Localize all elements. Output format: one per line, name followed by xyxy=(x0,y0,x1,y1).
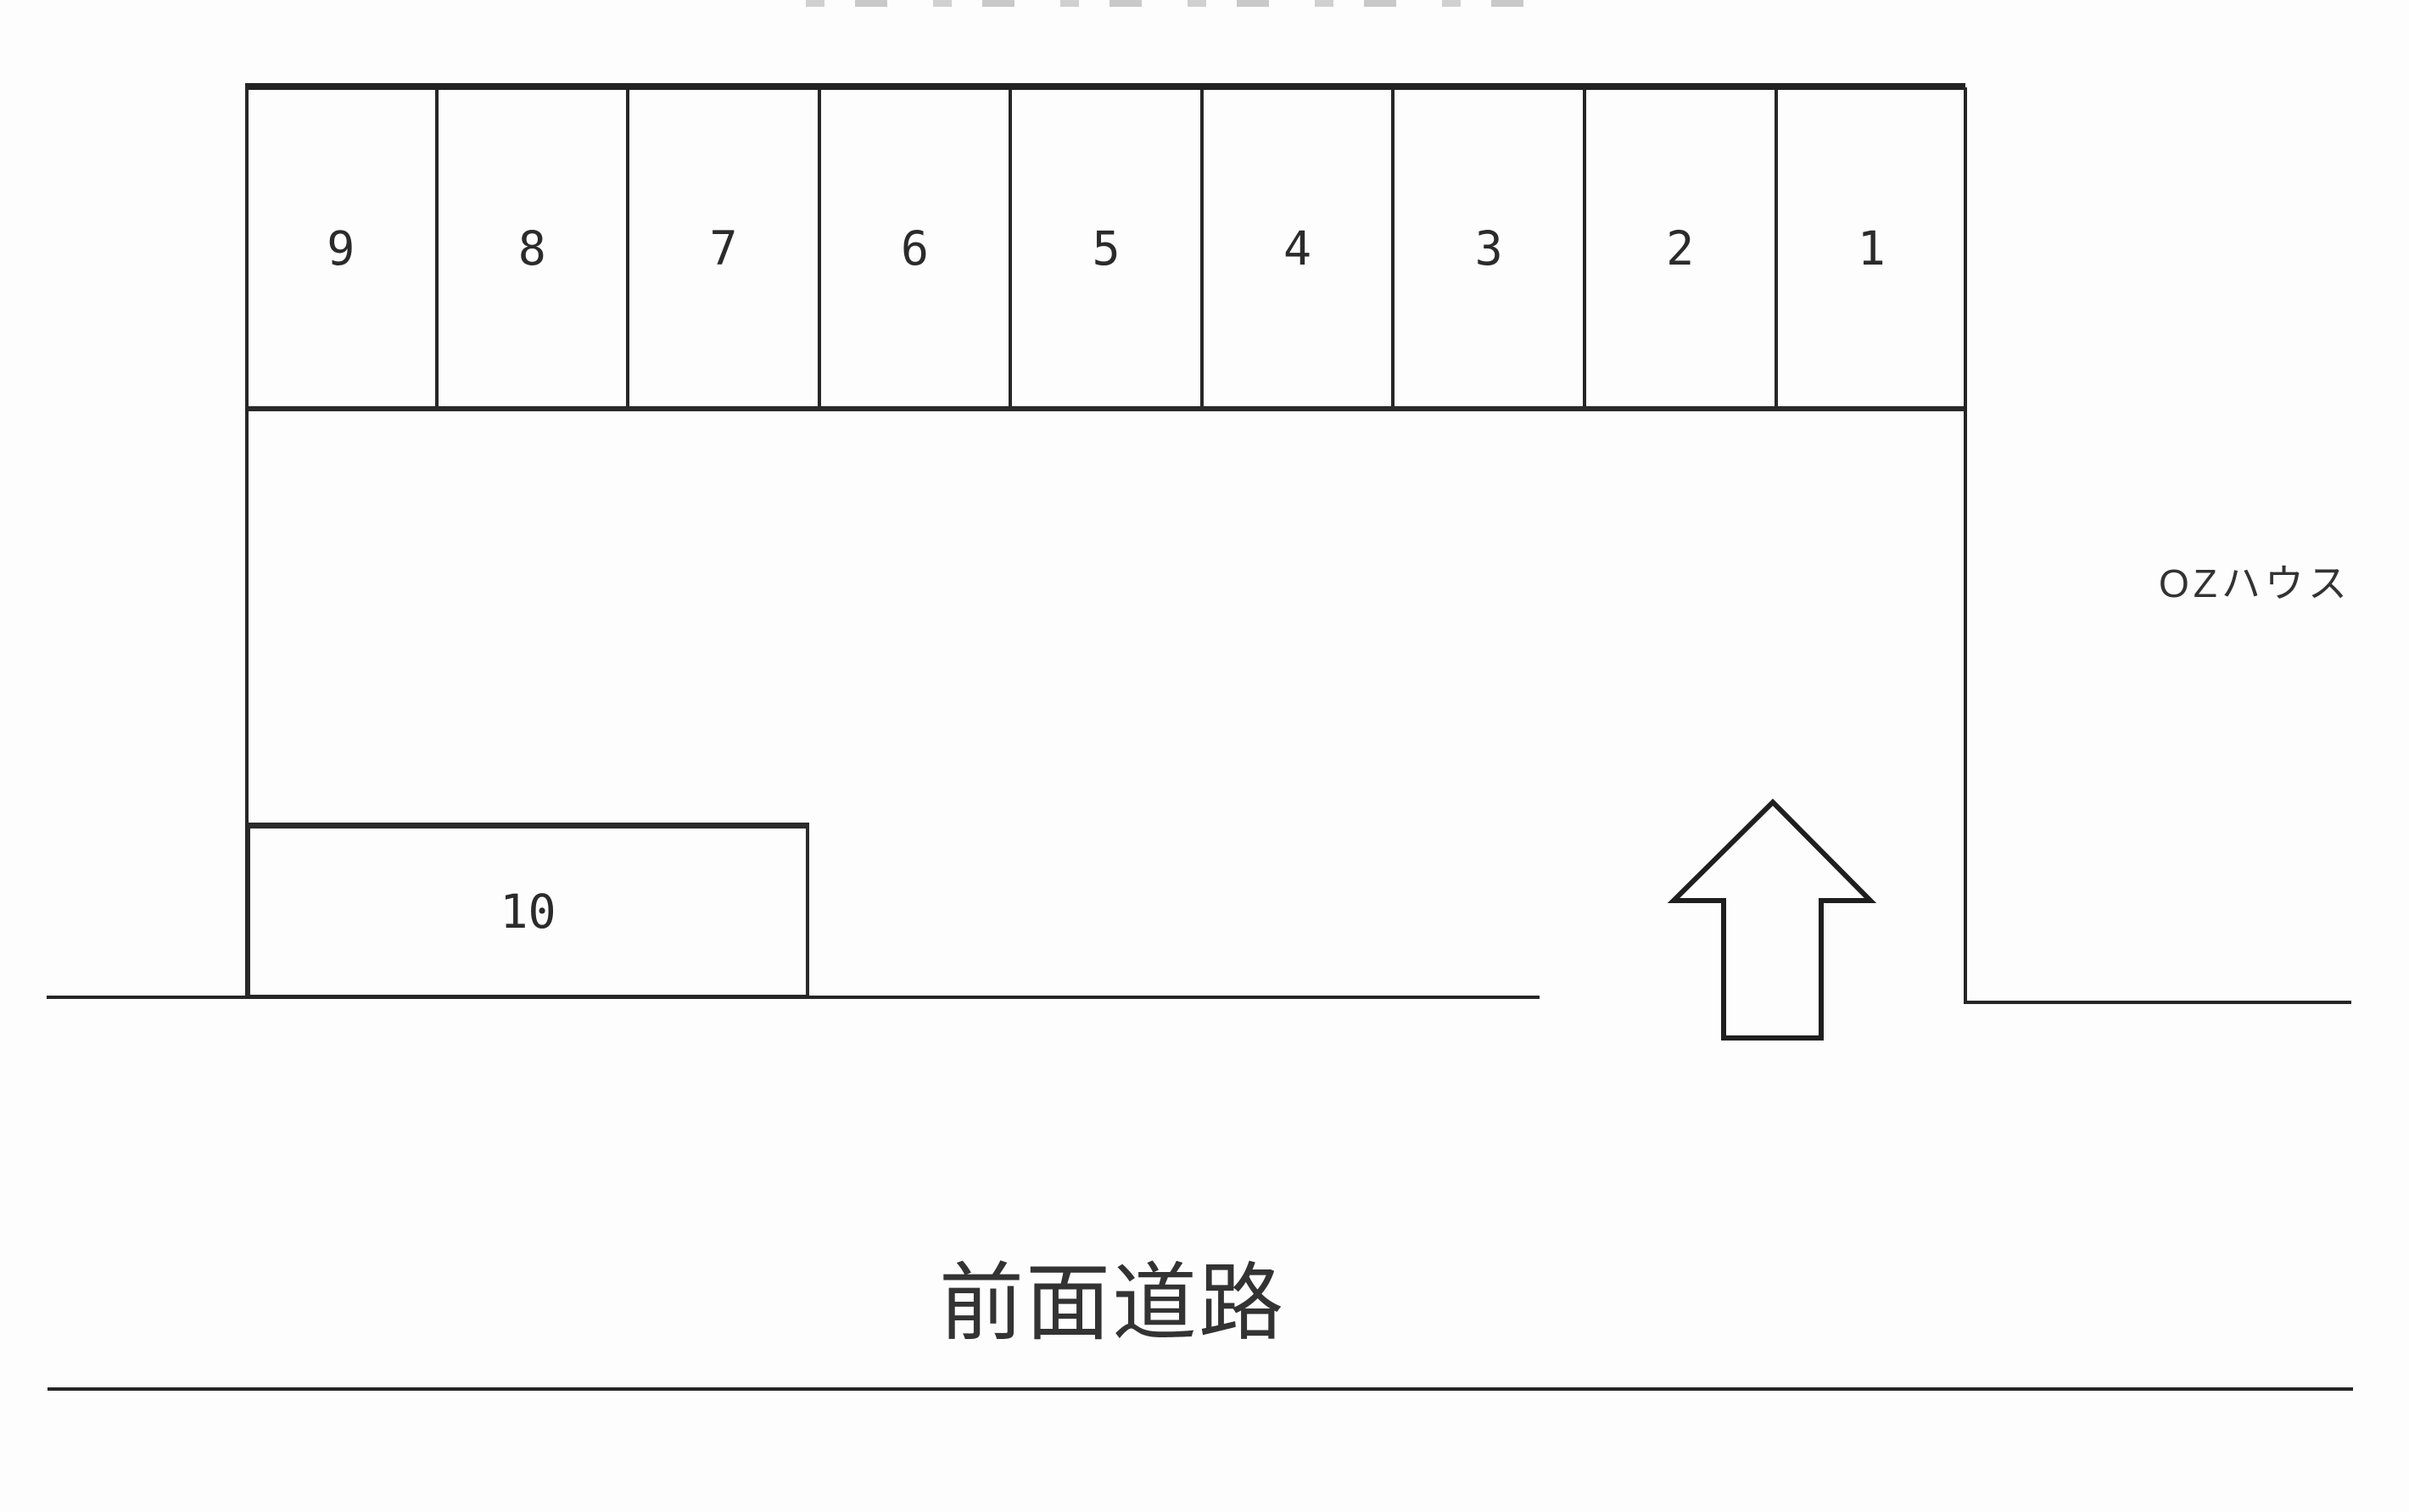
space-number: 3 xyxy=(1475,221,1503,276)
parking-layout-sheet: 9 8 7 6 5 4 3 2 1 10 OZハ xyxy=(0,0,2409,1512)
lot-right-boundary-line xyxy=(1964,87,1967,1004)
parking-space-6: 6 xyxy=(821,90,1013,406)
building-label: OZハウス xyxy=(2159,553,2351,609)
road-edge-line-left xyxy=(47,996,1540,999)
parking-space-7: 7 xyxy=(629,90,821,406)
parking-space-2: 2 xyxy=(1586,90,1778,406)
space-number: 8 xyxy=(518,221,546,276)
entrance-arrow-icon xyxy=(1667,795,1879,1046)
cutoff-text-fragments xyxy=(806,0,1544,7)
parking-space-10: 10 xyxy=(247,823,809,998)
space-number: 1 xyxy=(1858,221,1886,276)
road-label: 前面道路 xyxy=(939,1234,1285,1357)
space-number: 2 xyxy=(1666,221,1694,276)
parking-space-9: 9 xyxy=(247,90,439,406)
parking-row: 9 8 7 6 5 4 3 2 1 xyxy=(247,83,1965,411)
space-number: 7 xyxy=(709,221,737,276)
space-number: 4 xyxy=(1283,221,1311,276)
space-number: 5 xyxy=(1092,221,1120,276)
parking-space-4: 4 xyxy=(1204,90,1395,406)
space-number: 6 xyxy=(901,221,929,276)
road-edge-line-right xyxy=(1965,1001,2351,1004)
outer-road-line xyxy=(48,1387,2353,1391)
parking-space-3: 3 xyxy=(1395,90,1586,406)
parking-space-5: 5 xyxy=(1012,90,1204,406)
parking-space-8: 8 xyxy=(439,90,630,406)
space-number: 10 xyxy=(500,884,556,939)
space-number: 9 xyxy=(327,221,355,276)
parking-space-1: 1 xyxy=(1778,90,1966,406)
